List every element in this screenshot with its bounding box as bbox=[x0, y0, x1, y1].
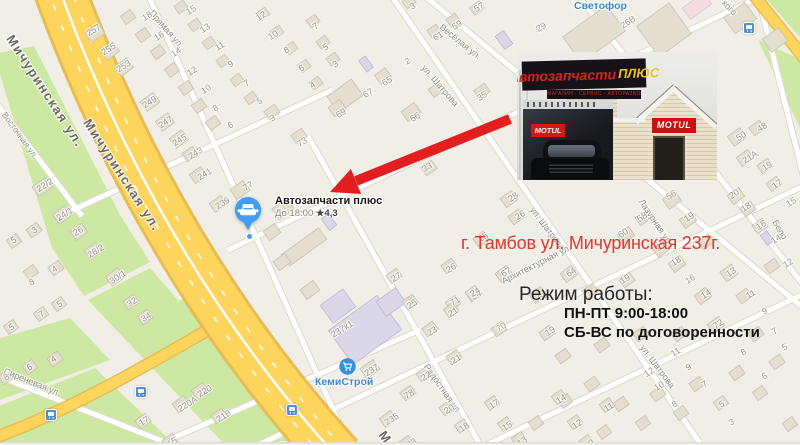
pin-label[interactable]: Автозапчасти плюс До 18:00 ★4,3 bbox=[275, 195, 382, 219]
storefront-photo: MOTUL Автозапчасти ПЛЮС МАГАЗИН · СЕРВИС… bbox=[517, 52, 717, 180]
shopping-cart-icon bbox=[339, 358, 356, 375]
store-sign-title2: ПЛЮС bbox=[618, 65, 660, 81]
pin-hours: До 18:00 bbox=[275, 208, 313, 219]
door bbox=[653, 136, 685, 180]
store-sign-title: Автозапчасти bbox=[517, 66, 616, 85]
address-text: г. Тамбов ул. Мичуринская 237г. bbox=[461, 233, 720, 254]
bus-stop-icon[interactable] bbox=[135, 386, 147, 398]
roof-eave bbox=[613, 118, 645, 122]
motul-banner: MOTUL bbox=[523, 100, 613, 180]
car-windshield bbox=[548, 145, 595, 157]
pin-rating: 4,3 bbox=[324, 208, 337, 219]
car-grille bbox=[549, 164, 593, 173]
poi-kemistroy[interactable]: КемиСтрой bbox=[327, 358, 367, 388]
map-canvas[interactable]: Мичуринская ул.Мичуринская ул.Мичуринска… bbox=[0, 0, 800, 445]
car-pin-icon bbox=[233, 196, 263, 236]
poi-label-kemistroy: КемиСтрой bbox=[315, 376, 367, 388]
bus-stop-icon[interactable] bbox=[45, 409, 57, 421]
bus-stop-icon[interactable] bbox=[743, 22, 755, 34]
store-sign: Автозапчасти ПЛЮС bbox=[522, 58, 647, 90]
motul-logo: MOTUL bbox=[531, 124, 565, 137]
store-sign-subtitle: МАГАЗИН · СЕРВИС · АВТОРАЗБОРКА bbox=[547, 90, 641, 99]
schedule-weekdays: ПН-ПТ 9:00-18:00 bbox=[564, 305, 688, 322]
schedule-title: Режим работы: bbox=[519, 284, 653, 306]
motul-wall-sign: MOTUL bbox=[652, 118, 696, 133]
pin-subtitle: До 18:00 ★4,3 bbox=[275, 208, 382, 219]
bus-stop-icon[interactable] bbox=[286, 404, 298, 416]
banner-header bbox=[523, 100, 613, 109]
pin-location-dot bbox=[246, 233, 253, 240]
pin-title: Автозапчасти плюс bbox=[275, 195, 382, 207]
pole bbox=[519, 70, 521, 180]
poi-label-svetofor[interactable]: Светофор bbox=[574, 0, 627, 12]
schedule-weekend: СБ-ВС по договоренности bbox=[564, 324, 760, 341]
